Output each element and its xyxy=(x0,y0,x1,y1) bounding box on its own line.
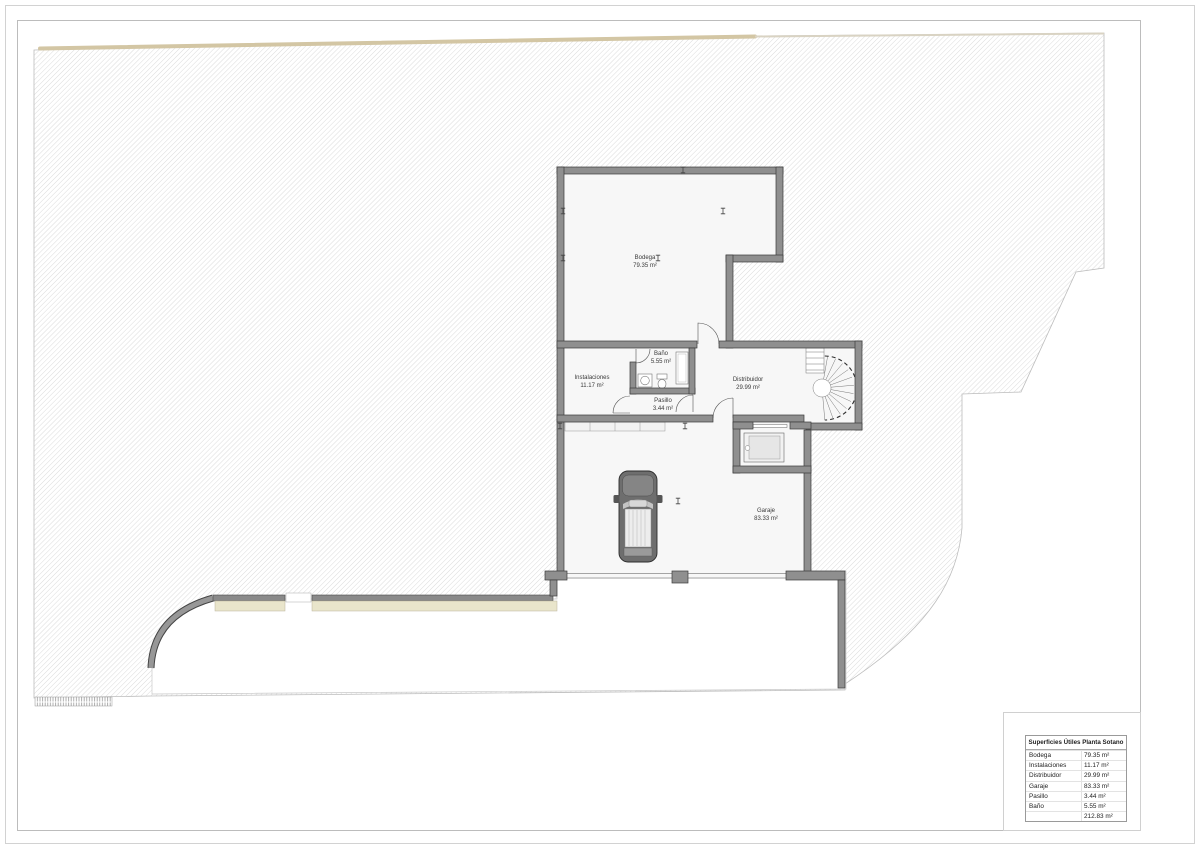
room-label-garaje: Garaje xyxy=(757,508,776,514)
car xyxy=(614,471,663,562)
room-name-cell: Bodega xyxy=(1026,751,1081,760)
car-mirror-right xyxy=(657,495,663,503)
entrance-steps xyxy=(286,593,311,602)
car-rear-window xyxy=(624,548,652,556)
planter-strip-right xyxy=(312,601,557,611)
room-area-distribuidor: 29.99 m² xyxy=(736,385,760,391)
room-label-instalaciones: Instalaciones xyxy=(574,375,609,381)
toilet xyxy=(657,374,667,379)
room-area-cell: 29.99 m² xyxy=(1081,771,1126,780)
room-label-distribuidor: Distribuidor xyxy=(733,377,763,383)
boundary-tick-strip xyxy=(35,697,112,706)
planter-strip-left xyxy=(215,601,285,611)
table-row: Pasillo 3.44 m² xyxy=(1026,791,1126,801)
room-name-cell: Baño xyxy=(1026,802,1081,811)
car-hood xyxy=(623,475,654,496)
table-row: Bodega 79.35 m² xyxy=(1026,750,1126,760)
cabinets xyxy=(565,422,665,431)
legend-title: Superficies Útiles Planta Sotano xyxy=(1026,736,1126,750)
floor-plan-page: { "rooms": { "bodega": {"name": "Bodega"… xyxy=(0,0,1200,849)
room-area-pasillo: 3.44 m² xyxy=(653,406,673,412)
room-area-garaje: 83.33 m² xyxy=(754,516,778,522)
total-area-cell: 212.83 m² xyxy=(1081,812,1126,821)
room-area-bano: 5.55 m² xyxy=(651,359,671,365)
table-total-row: 212.83 m² xyxy=(1026,811,1126,821)
retaining-wall-right xyxy=(312,595,553,601)
elevator-door xyxy=(753,425,787,428)
room-name-cell: Instalaciones xyxy=(1026,761,1081,770)
room-name-cell: Distribuidor xyxy=(1026,771,1081,780)
room-area-cell: 5.55 m² xyxy=(1081,802,1126,811)
room-area-cell: 79.35 m² xyxy=(1081,751,1126,760)
room-name-cell: Pasillo xyxy=(1026,792,1081,801)
areas-legend-table: Superficies Útiles Planta Sotano Bodega … xyxy=(1025,735,1127,822)
room-area-cell: 11.17 m² xyxy=(1081,761,1126,770)
room-label-bodega: Bodega xyxy=(635,255,656,261)
room-area-instalaciones: 11.17 m² xyxy=(580,383,603,389)
table-row: Instalaciones 11.17 m² xyxy=(1026,760,1126,770)
table-row: Garaje 83.33 m² xyxy=(1026,781,1126,791)
car-mirror-left xyxy=(614,495,620,503)
retaining-wall-left xyxy=(213,595,285,601)
room-area-cell: 83.33 m² xyxy=(1081,782,1126,791)
room-name-cell: Garaje xyxy=(1026,782,1081,791)
table-row: Distribuidor 29.99 m² xyxy=(1026,770,1126,780)
room-label-bano: Baño xyxy=(654,351,669,357)
room-area-bodega: 79.35 m² xyxy=(633,263,657,269)
shower xyxy=(676,352,688,384)
room-area-cell: 3.44 m² xyxy=(1081,792,1126,801)
room-name-cell xyxy=(1026,812,1081,821)
room-label-pasillo: Pasillo xyxy=(654,398,672,404)
table-row: Baño 5.55 m² xyxy=(1026,801,1126,811)
